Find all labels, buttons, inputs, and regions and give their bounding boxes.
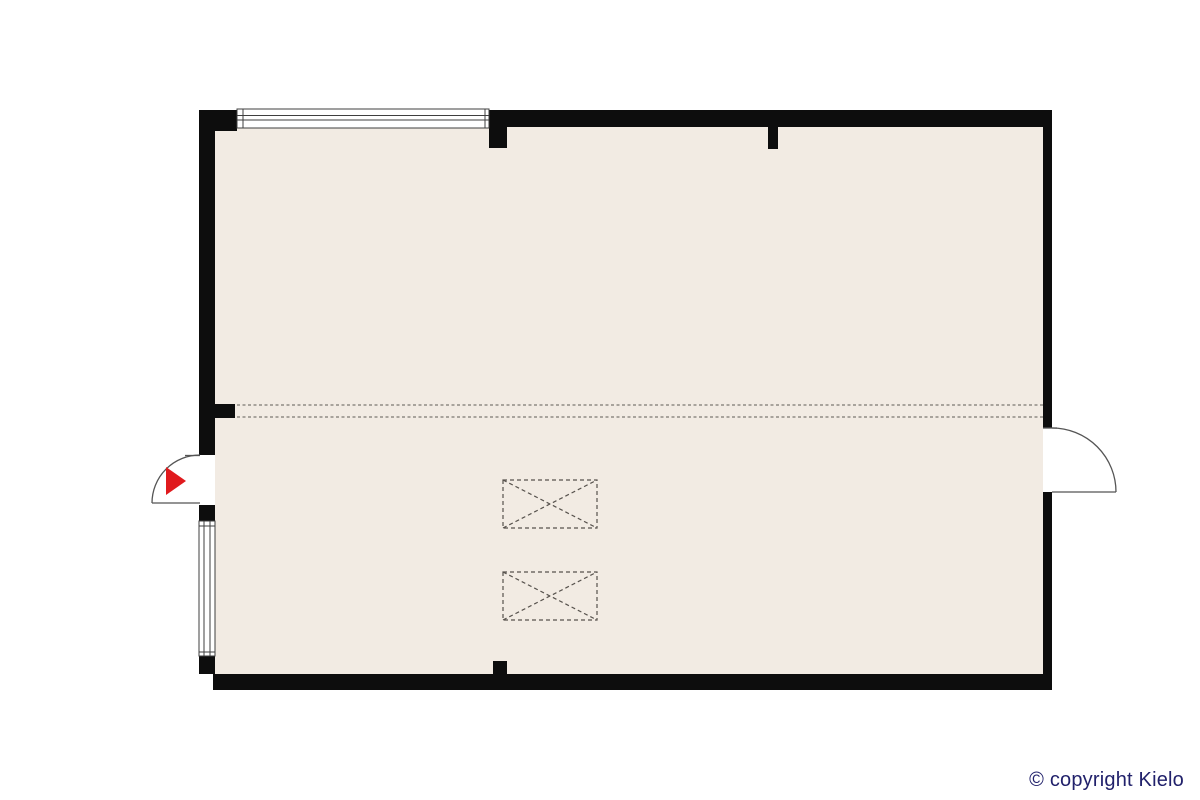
wall-right-upper [1043,110,1052,428]
floorplan-svg [0,0,1200,800]
wall-stub-top-2 [768,110,778,149]
wall-stub-top-1 [489,110,507,148]
floor-area [215,127,1043,675]
wall-stub-left [215,404,235,418]
wall-stub-bottom [493,661,507,675]
window-top-frame [237,109,489,128]
floorplan-canvas [0,0,1200,800]
window-left-frame [199,521,215,656]
door-right [1043,428,1116,492]
wall-bottom [213,674,1052,690]
entrance-arrow-icon [166,467,186,495]
wall-left-upper [199,110,215,455]
door-right-opening [1043,428,1052,492]
door-right-swing-arc [1052,428,1116,492]
wall-left-lower-block [199,656,215,674]
copyright-notice: © copyright Kielo [1029,769,1184,792]
door-left-opening [199,455,215,505]
window-left [199,521,215,656]
window-top [237,109,489,128]
page: { "footer": { "copyright": "© copyright … [0,0,1200,800]
wall-left-mid [199,505,215,521]
door-left-entrance [152,455,215,505]
wall-right-lower [1043,492,1052,690]
